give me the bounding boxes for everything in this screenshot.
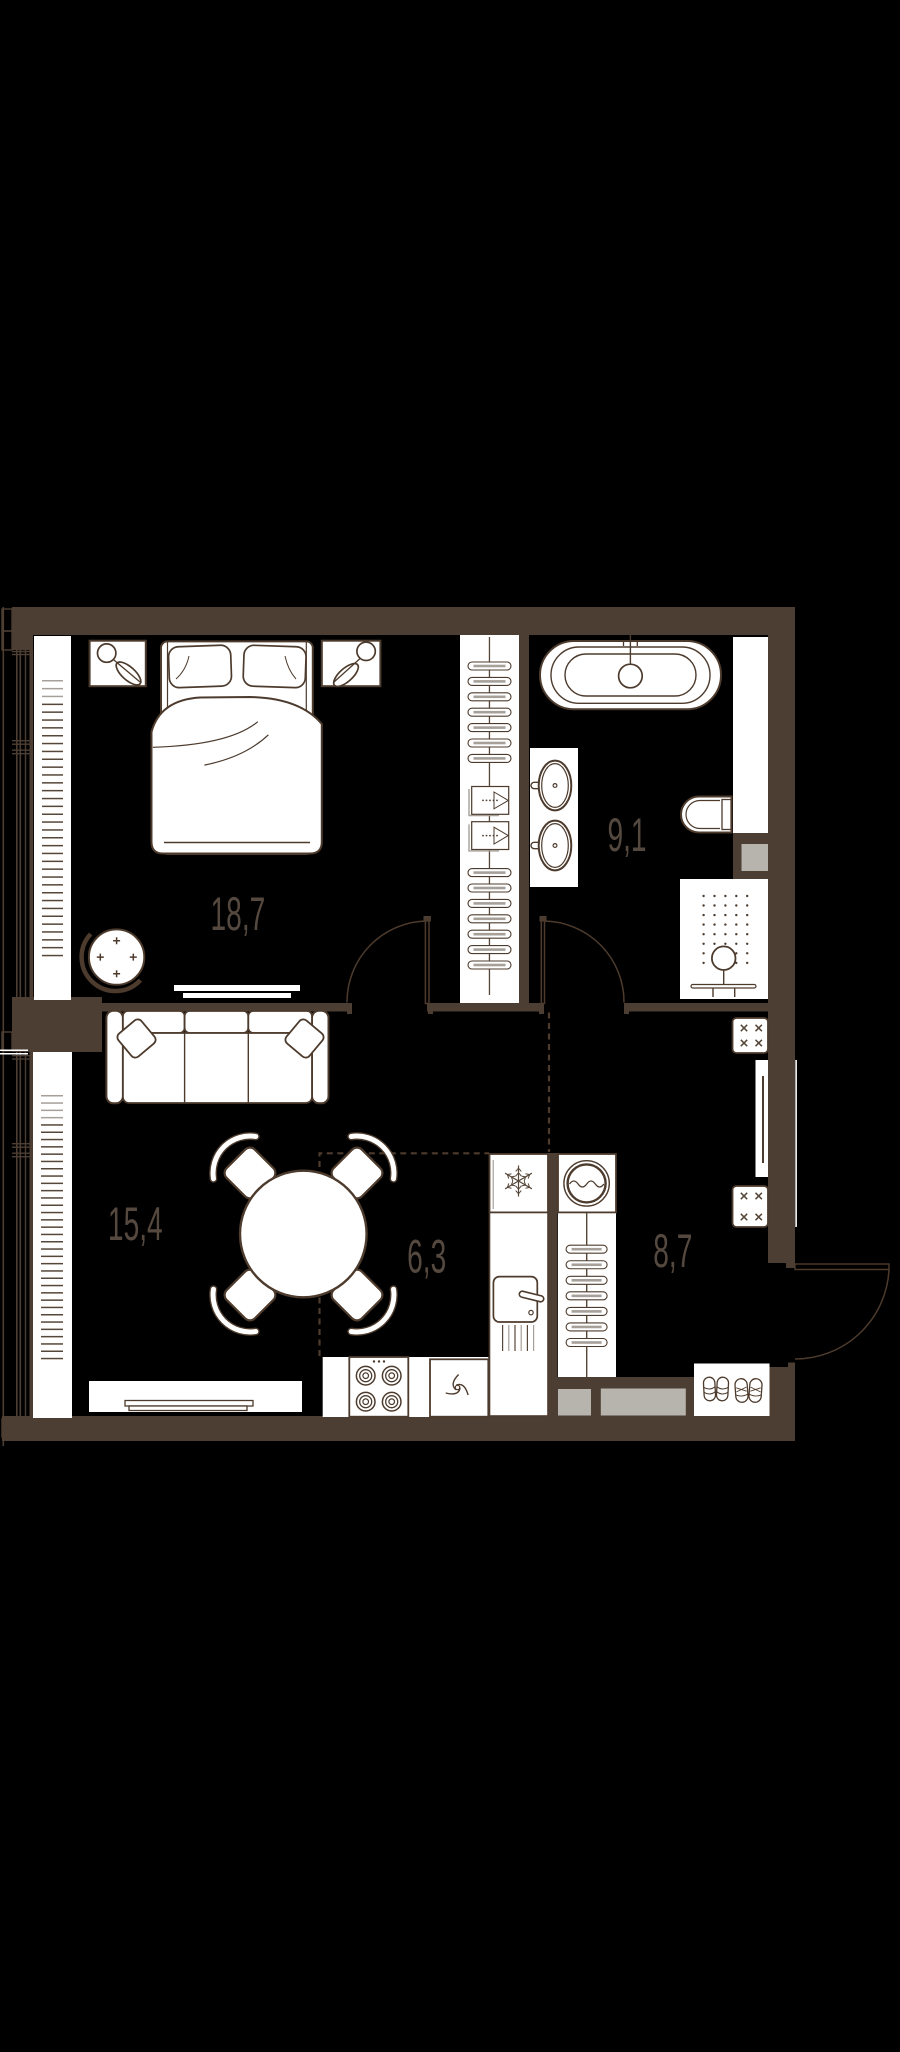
svg-text:18,7: 18,7: [211, 889, 266, 941]
svg-text:15,4: 15,4: [108, 1199, 163, 1251]
svg-text:6,3: 6,3: [407, 1231, 446, 1283]
svg-text:8,7: 8,7: [653, 1226, 692, 1278]
svg-text:9,1: 9,1: [607, 810, 646, 862]
